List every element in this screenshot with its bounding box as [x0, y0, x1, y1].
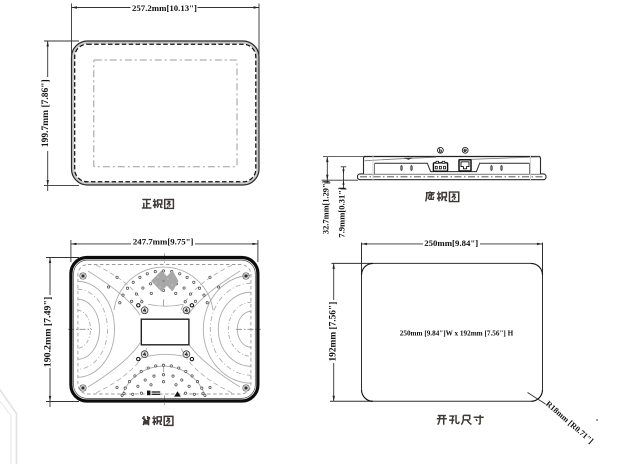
svg-text:250mm [9.84"]W x 192mm [7.56"]: 250mm [9.84"]W x 192mm [7.56"] H — [400, 329, 514, 337]
svg-text:190.2mm [7.49"]: 190.2mm [7.49"] — [42, 297, 53, 367]
svg-text:247.7mm[9.75"]: 247.7mm[9.75"] — [133, 236, 194, 246]
svg-text:7.9mm[0.31"]: 7.9mm[0.31"] — [337, 187, 347, 238]
svg-text:199.7mm [7.86"]: 199.7mm [7.86"] — [41, 79, 51, 147]
svg-text:32.7mm[1.29"]: 32.7mm[1.29"] — [322, 180, 331, 234]
svg-text:250mm[9.84"]: 250mm[9.84"] — [424, 238, 478, 248]
svg-text:192mm [7.56"]: 192mm [7.56"] — [329, 302, 339, 362]
svg-text:257.2mm[10.13"]: 257.2mm[10.13"] — [132, 3, 197, 13]
